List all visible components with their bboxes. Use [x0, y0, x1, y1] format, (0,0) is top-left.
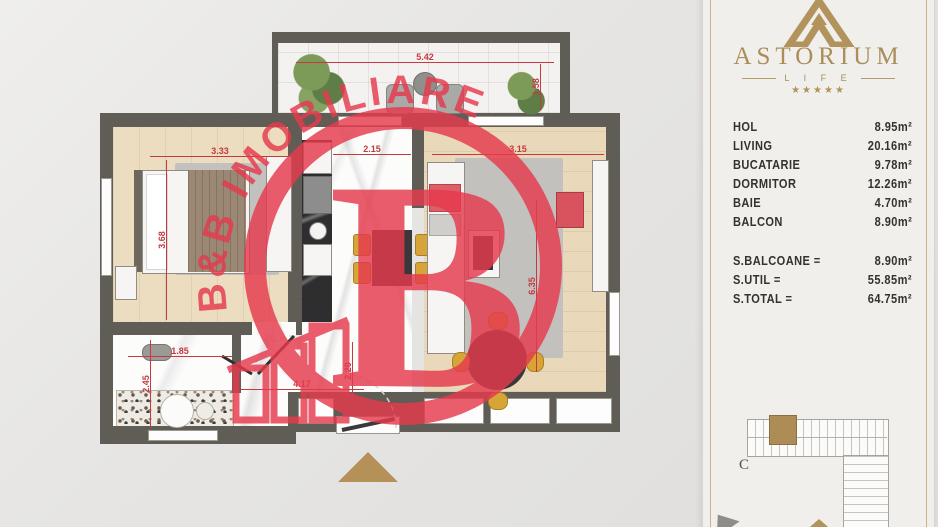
bath-window: [148, 430, 218, 441]
floorplan-page: 5.42 1.58 3.33 3.68 2.15 3.15 6.35 1.85 …: [0, 0, 938, 527]
living-side-window: [609, 292, 620, 356]
bath-right-wall: [232, 335, 241, 393]
room-label: LIVING: [733, 138, 772, 153]
sofa-gray-pillow: [429, 214, 461, 236]
room-label: BALCON: [733, 214, 783, 229]
cooktop: [303, 244, 332, 276]
room-value: 9.78m²: [874, 157, 912, 172]
dim-label: 3.15: [509, 144, 527, 154]
minimap-highlighted-unit: [769, 415, 797, 445]
bedroom-door-opening: [252, 322, 296, 335]
room-label: DORMITOR: [733, 176, 796, 191]
room-value: 8.95m²: [874, 119, 912, 134]
dim-bath-depth: 2.45: [150, 340, 152, 428]
dim-hall-length: 4.17: [240, 389, 364, 391]
round-chair-right: [526, 352, 544, 372]
dining-chair-2: [353, 262, 371, 284]
dim-label: 2.20: [343, 362, 353, 380]
shower-tray: [160, 394, 194, 428]
balcony-window-glass: [468, 116, 544, 126]
wardrobe: [266, 156, 292, 272]
room-label: BAIE: [733, 195, 761, 210]
bath-vanity: [196, 402, 214, 420]
dining-chair-1: [353, 234, 371, 256]
balcony-right-rail: [560, 32, 570, 116]
coffee-table-top: [473, 236, 493, 270]
bottom-window-1: [298, 398, 334, 424]
tv-console: [592, 160, 609, 292]
dim-label: 3.68: [157, 231, 167, 249]
total-value: 64.75m²: [868, 291, 912, 306]
building-minimap: C: [739, 411, 909, 527]
dining-table: [372, 230, 412, 286]
round-chair-top: [488, 312, 508, 330]
room-value: 4.70m²: [874, 195, 912, 210]
total-row: S.TOTAL = 64.75m²: [733, 291, 912, 310]
brand-stars: ★★★★★: [703, 85, 934, 96]
dim-label: 5.42: [416, 52, 434, 62]
bedroom-window: [101, 178, 112, 276]
bed-blanket: [188, 170, 246, 272]
red-cabinet: [556, 192, 584, 228]
dim-living-width: 3.15: [432, 154, 604, 156]
dim-hall-width: 1.85: [128, 356, 232, 358]
brand-subtitle: L I F E: [784, 73, 852, 83]
area-row: LIVING 20.16m²: [733, 138, 912, 157]
round-chair-bottom: [488, 392, 508, 410]
total-value: 8.90m²: [874, 253, 912, 268]
oven: [303, 176, 332, 214]
balcony-table: [413, 72, 437, 96]
area-row: BALCON 8.90m²: [733, 214, 912, 233]
bottom-window-4: [556, 398, 612, 424]
kitchen-sink: [309, 222, 327, 240]
dim-label: 1.85: [171, 346, 189, 356]
right-rule: [861, 78, 895, 79]
room-value: 8.90m²: [874, 214, 912, 229]
dim-kitchen-width: 2.15: [333, 154, 411, 156]
area-row: BUCATARIE 9.78m²: [733, 157, 912, 176]
bed-headboard: [134, 170, 142, 272]
dim-entry-depth: 2.20: [352, 342, 354, 400]
kitchen-living-wall: [412, 126, 424, 208]
left-rule: [742, 78, 776, 79]
sofa-red-pillow: [429, 184, 461, 212]
minimap-block-label: C: [739, 457, 749, 474]
dim-label: 2.45: [141, 375, 151, 393]
brand-name: ASTORIUM: [703, 43, 934, 71]
dim-label: 2.15: [363, 144, 381, 154]
round-chair-left: [452, 352, 470, 372]
bed-pillows: [146, 174, 168, 270]
round-table: [467, 330, 527, 390]
toilet: [142, 344, 172, 361]
balcony-armchair-2: [436, 84, 464, 114]
room-value: 12.26m²: [868, 176, 912, 191]
total-label: S.UTIL =: [733, 272, 781, 287]
floorplan: 5.42 1.58 3.33 3.68 2.15 3.15 6.35 1.85 …: [0, 0, 700, 527]
room-label: BUCATARIE: [733, 157, 800, 172]
info-panel: ASTORIUM L I F E ★★★★★ HOL 8.95m² LIVING…: [702, 0, 935, 527]
dim-label: 3.33: [211, 146, 229, 156]
left-wall: [100, 113, 113, 444]
dim-balcony-depth: 1.58: [540, 64, 542, 110]
bedroom-bench: [115, 266, 137, 300]
dim-living-depth: 6.35: [536, 200, 538, 372]
balcony-left-rail: [272, 32, 278, 116]
dim-bedroom-depth: 3.68: [166, 160, 168, 320]
total-value: 55.85m²: [868, 272, 912, 287]
total-label: S.BALCOANE =: [733, 253, 821, 268]
area-row: HOL 8.95m²: [733, 119, 912, 138]
entrance-arrow: [338, 452, 398, 482]
balcony-plant-left: [292, 50, 348, 114]
dim-balcony-width: 5.42: [296, 62, 554, 64]
balcony-top-wall: [272, 32, 570, 43]
area-row: BAIE 4.70m²: [733, 195, 912, 214]
room-value: 20.16m²: [868, 138, 912, 153]
dim-bedroom-width: 3.33: [150, 156, 290, 158]
minimap-wing-vertical: [843, 455, 889, 527]
total-row: S.BALCOANE = 8.90m²: [733, 253, 912, 272]
brand-subtitle-row: L I F E: [703, 73, 934, 83]
dim-label: 4.17: [293, 379, 311, 389]
balcony-door-glass: [338, 116, 402, 126]
dim-label: 1.58: [531, 78, 541, 96]
bottom-logo-partial: [803, 519, 835, 527]
astorium-logo-icon: [783, 0, 855, 47]
total-row: S.UTIL = 55.85m²: [733, 272, 912, 291]
bottom-window-2: [424, 398, 484, 424]
balcony-armchair-1: [386, 84, 414, 114]
compass-icon: [706, 507, 739, 527]
fridge: [303, 142, 332, 174]
dim-label: 6.35: [527, 277, 537, 295]
area-row: DORMITOR 12.26m²: [733, 176, 912, 195]
total-label: S.TOTAL =: [733, 291, 792, 306]
room-label: HOL: [733, 119, 758, 134]
minimap-wing-divider: [747, 437, 887, 438]
